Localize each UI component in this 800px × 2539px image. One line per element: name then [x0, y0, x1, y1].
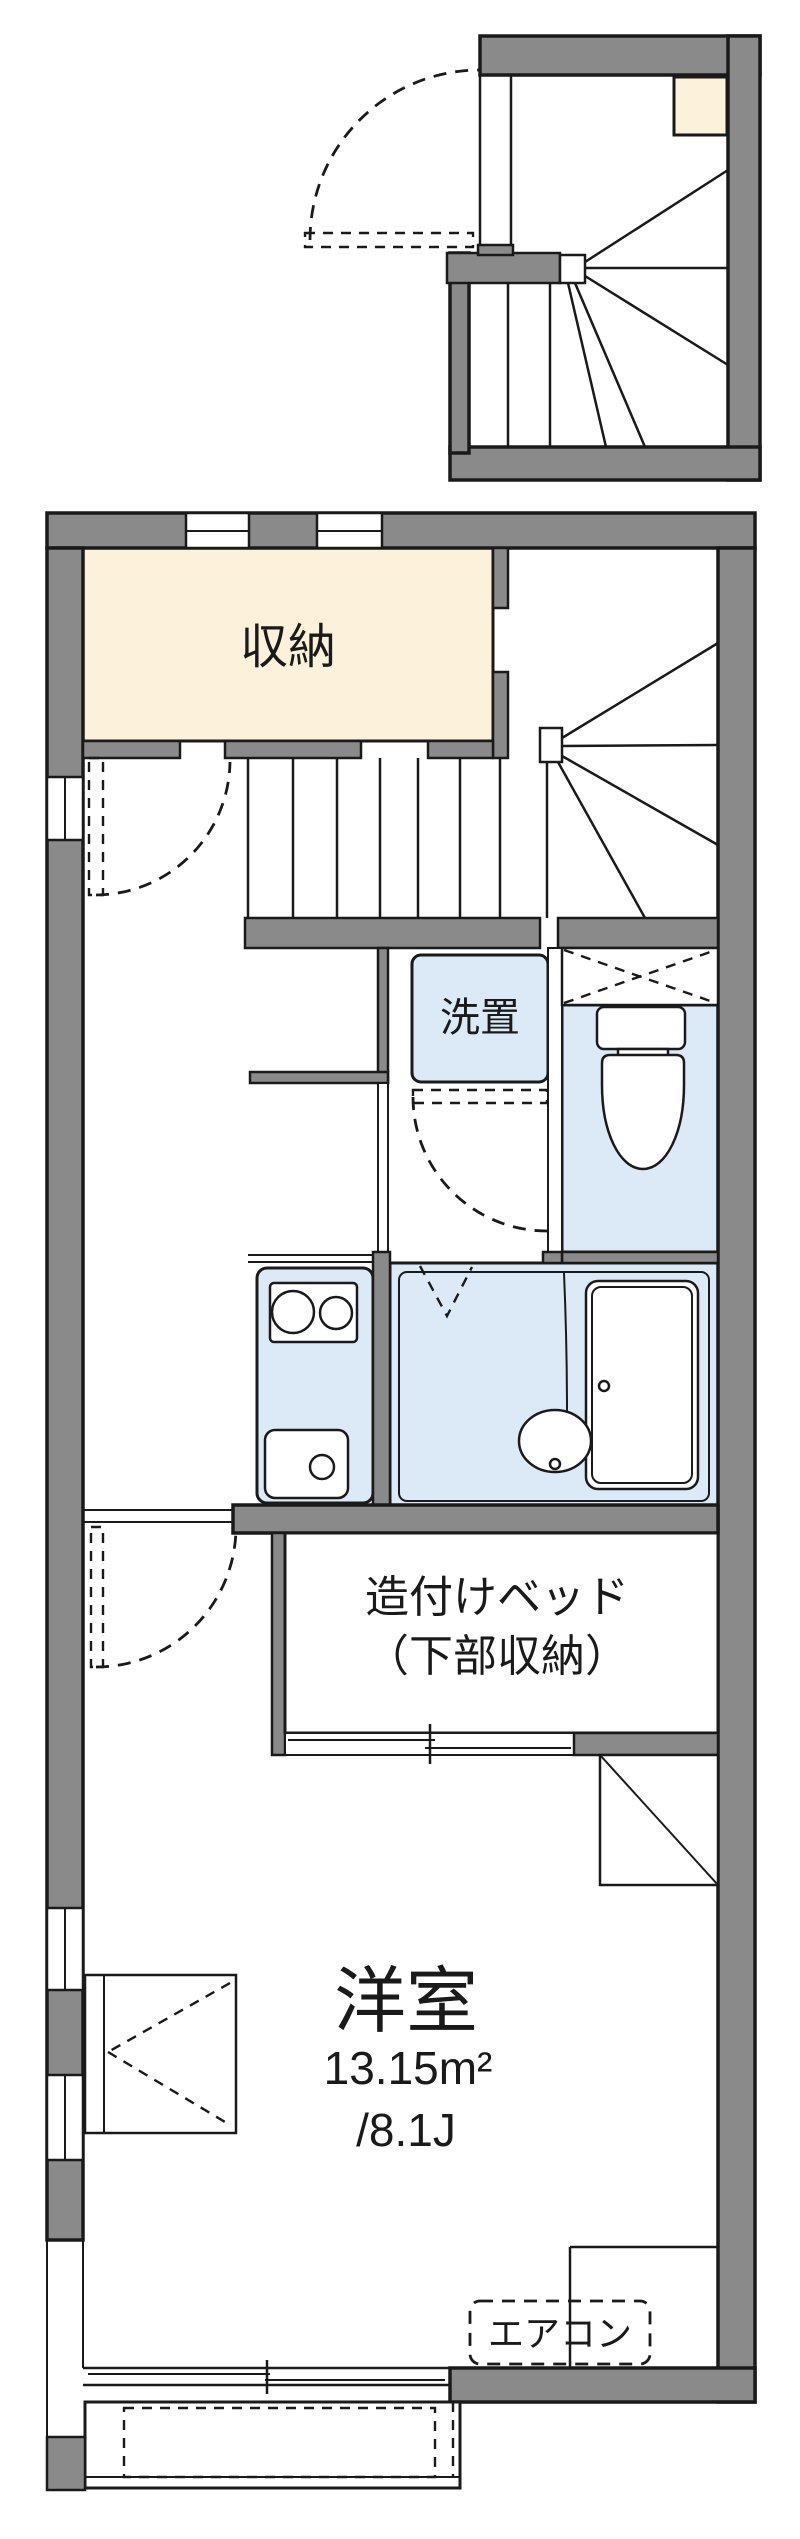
kitchen-bath-divider: [373, 1252, 390, 1533]
upper-stair-section: [305, 36, 760, 480]
right-wall: [718, 548, 755, 2402]
stair-bottom-wall-right: [558, 918, 718, 948]
corner-step: [600, 1755, 718, 1885]
storage-bottom-wall-2: [225, 741, 361, 758]
balcony-left-stub: [47, 2437, 85, 2490]
storage-bottom-wall-3: [428, 741, 493, 758]
wash-basin: [519, 1410, 591, 1472]
kitchen-counter: [257, 1268, 373, 1503]
bath-doorpost: [543, 1252, 562, 1263]
window-top-2: [317, 513, 382, 548]
main-stair-post: [540, 728, 562, 762]
bed-label-line1: 造付けベッド: [365, 1573, 629, 1622]
upper-mid-wall: [447, 253, 560, 283]
hall-thin-wall: [378, 1083, 388, 1255]
window-top-1: [186, 513, 249, 548]
window-left-a: [47, 777, 83, 840]
bed-label-line2: （下部収納）: [365, 1632, 629, 1681]
upper-doorpost: [478, 245, 513, 255]
storage-bottom-wall-1: [83, 741, 180, 758]
stove: [270, 1283, 357, 1342]
built-in-bed: 造付けベッド （下部収納）: [272, 1533, 718, 1764]
kitchen-sink: [265, 1430, 348, 1498]
floorplan-page: 収納 洗置: [0, 0, 800, 2539]
main-unit: 収納 洗置: [47, 513, 755, 2490]
storage-right-wall-lower: [493, 672, 508, 758]
washer-left-wall: [378, 948, 388, 1083]
upper-stair-post: [560, 255, 585, 283]
toilet-left-wall: [548, 948, 562, 1252]
washer-l-wall: [250, 1072, 388, 1083]
upper-shoebox: [674, 77, 727, 135]
bed-left-wall: [272, 1533, 285, 1755]
room-name-label: 洋室: [334, 1962, 478, 2042]
bed-right-wall: [574, 1733, 718, 1755]
stair-bottom-wall-left: [245, 918, 540, 948]
upper-right-wall: [728, 36, 760, 480]
window-left-c: [47, 2075, 83, 2160]
room-tatami-label: /8.1J: [356, 2104, 456, 2156]
washer-label: 洗置: [440, 996, 520, 1040]
window-left-b: [47, 1908, 83, 1990]
room-divider-wall: [233, 1505, 718, 1533]
bottom-right-wall: [450, 2368, 755, 2402]
bathtub: [586, 1281, 698, 1489]
upper-top-wall: [480, 36, 760, 75]
aircon-label: エアコン: [488, 2313, 632, 2354]
closet: [85, 1975, 236, 2133]
toilet-bottom-wall: [562, 1252, 718, 1263]
entrance-door-leaf: [305, 233, 473, 247]
upper-bottom-wall: [450, 447, 760, 480]
storage-right-wall-upper: [493, 548, 508, 608]
overhead-shelf: [562, 948, 718, 1005]
top-wall: [47, 513, 755, 548]
floorplan-drawing: 収納 洗置: [0, 0, 800, 2539]
room-area-label: 13.15m²: [324, 2042, 493, 2094]
storage-label: 収納: [240, 621, 336, 674]
